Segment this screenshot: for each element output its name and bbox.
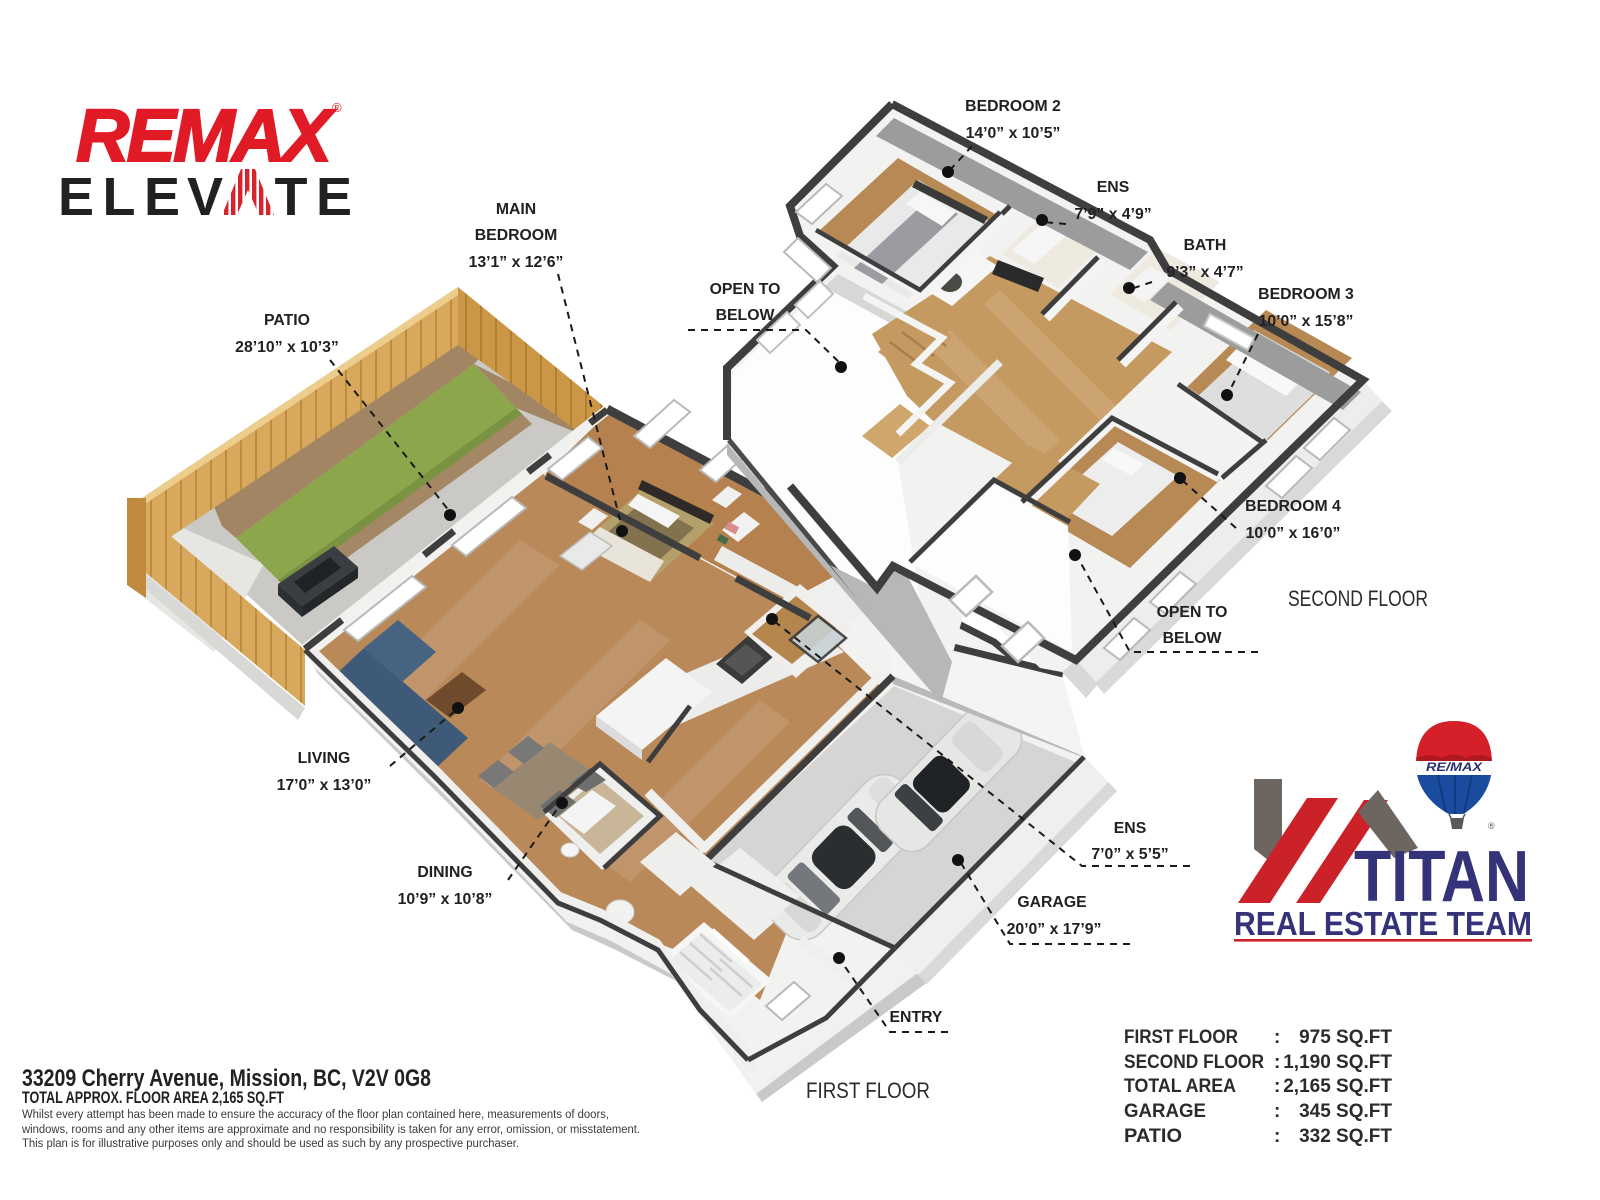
svg-text:BEDROOM: BEDROOM bbox=[475, 227, 558, 244]
svg-text:REAL ESTATE TEAM: REAL ESTATE TEAM bbox=[1234, 905, 1532, 942]
svg-text:17’0” x 13’0”: 17’0” x 13’0” bbox=[277, 777, 372, 794]
svg-text:BELOW: BELOW bbox=[716, 307, 775, 324]
svg-text:BEDROOM 2: BEDROOM 2 bbox=[965, 98, 1061, 115]
svg-text::: : bbox=[1274, 1027, 1280, 1048]
svg-text:345 SQ.FT: 345 SQ.FT bbox=[1299, 1101, 1392, 1122]
svg-text::: : bbox=[1274, 1076, 1280, 1097]
svg-text:FIRST FLOOR: FIRST FLOOR bbox=[806, 1078, 930, 1103]
svg-text:332 SQ.FT: 332 SQ.FT bbox=[1299, 1126, 1392, 1147]
svg-text:33209 Cherry Avenue, Mission,: 33209 Cherry Avenue, Mission, BC, V2V 0G… bbox=[22, 1065, 431, 1092]
svg-text:975 SQ.FT: 975 SQ.FT bbox=[1299, 1027, 1392, 1048]
svg-text:SECOND FLOOR: SECOND FLOOR bbox=[1124, 1052, 1264, 1073]
svg-text:20’0” x 17’9”: 20’0” x 17’9” bbox=[1007, 921, 1102, 938]
svg-text:LIVING: LIVING bbox=[298, 750, 351, 767]
svg-text:1,190 SQ.FT: 1,190 SQ.FT bbox=[1283, 1052, 1392, 1073]
svg-text:Whilst every attempt has been: Whilst every attempt has been made to en… bbox=[22, 1107, 609, 1121]
svg-text:OPEN TO: OPEN TO bbox=[710, 281, 781, 298]
svg-text::: : bbox=[1274, 1052, 1280, 1073]
svg-text:TOTAL APPROX. FLOOR AREA 2,165: TOTAL APPROX. FLOOR AREA 2,165 SQ.FT bbox=[22, 1089, 284, 1107]
svg-text:BEDROOM 4: BEDROOM 4 bbox=[1245, 498, 1341, 515]
svg-text:SECOND FLOOR: SECOND FLOOR bbox=[1288, 586, 1428, 611]
svg-text:ENTRY: ENTRY bbox=[890, 1009, 943, 1026]
svg-text:GARAGE: GARAGE bbox=[1017, 894, 1086, 911]
svg-text:windows, rooms and any other i: windows, rooms and any other items are a… bbox=[21, 1122, 640, 1136]
svg-text:V: V bbox=[187, 167, 223, 227]
svg-text::: : bbox=[1274, 1126, 1280, 1147]
svg-text:2,165 SQ.FT: 2,165 SQ.FT bbox=[1283, 1076, 1392, 1097]
svg-text:PATIO: PATIO bbox=[264, 312, 310, 329]
svg-text:DINING: DINING bbox=[417, 864, 472, 881]
svg-text:PATIO: PATIO bbox=[1124, 1126, 1182, 1147]
svg-text:ENS: ENS bbox=[1097, 179, 1129, 196]
svg-text:RE/MAX: RE/MAX bbox=[1426, 760, 1483, 774]
svg-text::: : bbox=[1274, 1101, 1280, 1122]
svg-text:7’0” x 5’5”: 7’0” x 5’5” bbox=[1091, 846, 1168, 863]
svg-text:28’10” x 10’3”: 28’10” x 10’3” bbox=[235, 339, 339, 356]
svg-text:13’1” x 12’6”: 13’1” x 12’6” bbox=[469, 254, 564, 271]
svg-text:TOTAL AREA: TOTAL AREA bbox=[1124, 1076, 1236, 1097]
svg-text:E: E bbox=[316, 167, 352, 227]
svg-text:OPEN TO: OPEN TO bbox=[1157, 604, 1228, 621]
svg-text:T: T bbox=[275, 167, 308, 227]
svg-text:14’0” x 10’5”: 14’0” x 10’5” bbox=[966, 125, 1061, 142]
svg-text:BELOW: BELOW bbox=[1163, 630, 1222, 647]
svg-text:10’9” x 10’8”: 10’9” x 10’8” bbox=[398, 891, 493, 908]
svg-text:®: ® bbox=[332, 100, 342, 115]
svg-text:MAIN: MAIN bbox=[496, 201, 536, 218]
svg-text:E: E bbox=[144, 167, 180, 227]
svg-text:BATH: BATH bbox=[1184, 237, 1227, 254]
svg-text:GARAGE: GARAGE bbox=[1124, 1101, 1206, 1122]
svg-text:L: L bbox=[103, 167, 136, 227]
svg-text:FIRST FLOOR: FIRST FLOOR bbox=[1124, 1027, 1238, 1048]
svg-text:®: ® bbox=[1488, 821, 1495, 831]
svg-text:REMAX: REMAX bbox=[76, 94, 337, 177]
svg-text:ENS: ENS bbox=[1114, 820, 1146, 837]
svg-text:10’0” x 15’8”: 10’0” x 15’8” bbox=[1259, 313, 1354, 330]
svg-text:9’3” x 4’7”: 9’3” x 4’7” bbox=[1166, 264, 1243, 281]
svg-text:This plan is for illustrative: This plan is for illustrative purposes o… bbox=[22, 1136, 519, 1150]
svg-text:10’0” x 16’0”: 10’0” x 16’0” bbox=[1246, 525, 1341, 542]
svg-text:7’9” x 4’9”: 7’9” x 4’9” bbox=[1074, 206, 1151, 223]
svg-text:E: E bbox=[58, 167, 94, 227]
svg-text:BEDROOM 3: BEDROOM 3 bbox=[1258, 286, 1354, 303]
